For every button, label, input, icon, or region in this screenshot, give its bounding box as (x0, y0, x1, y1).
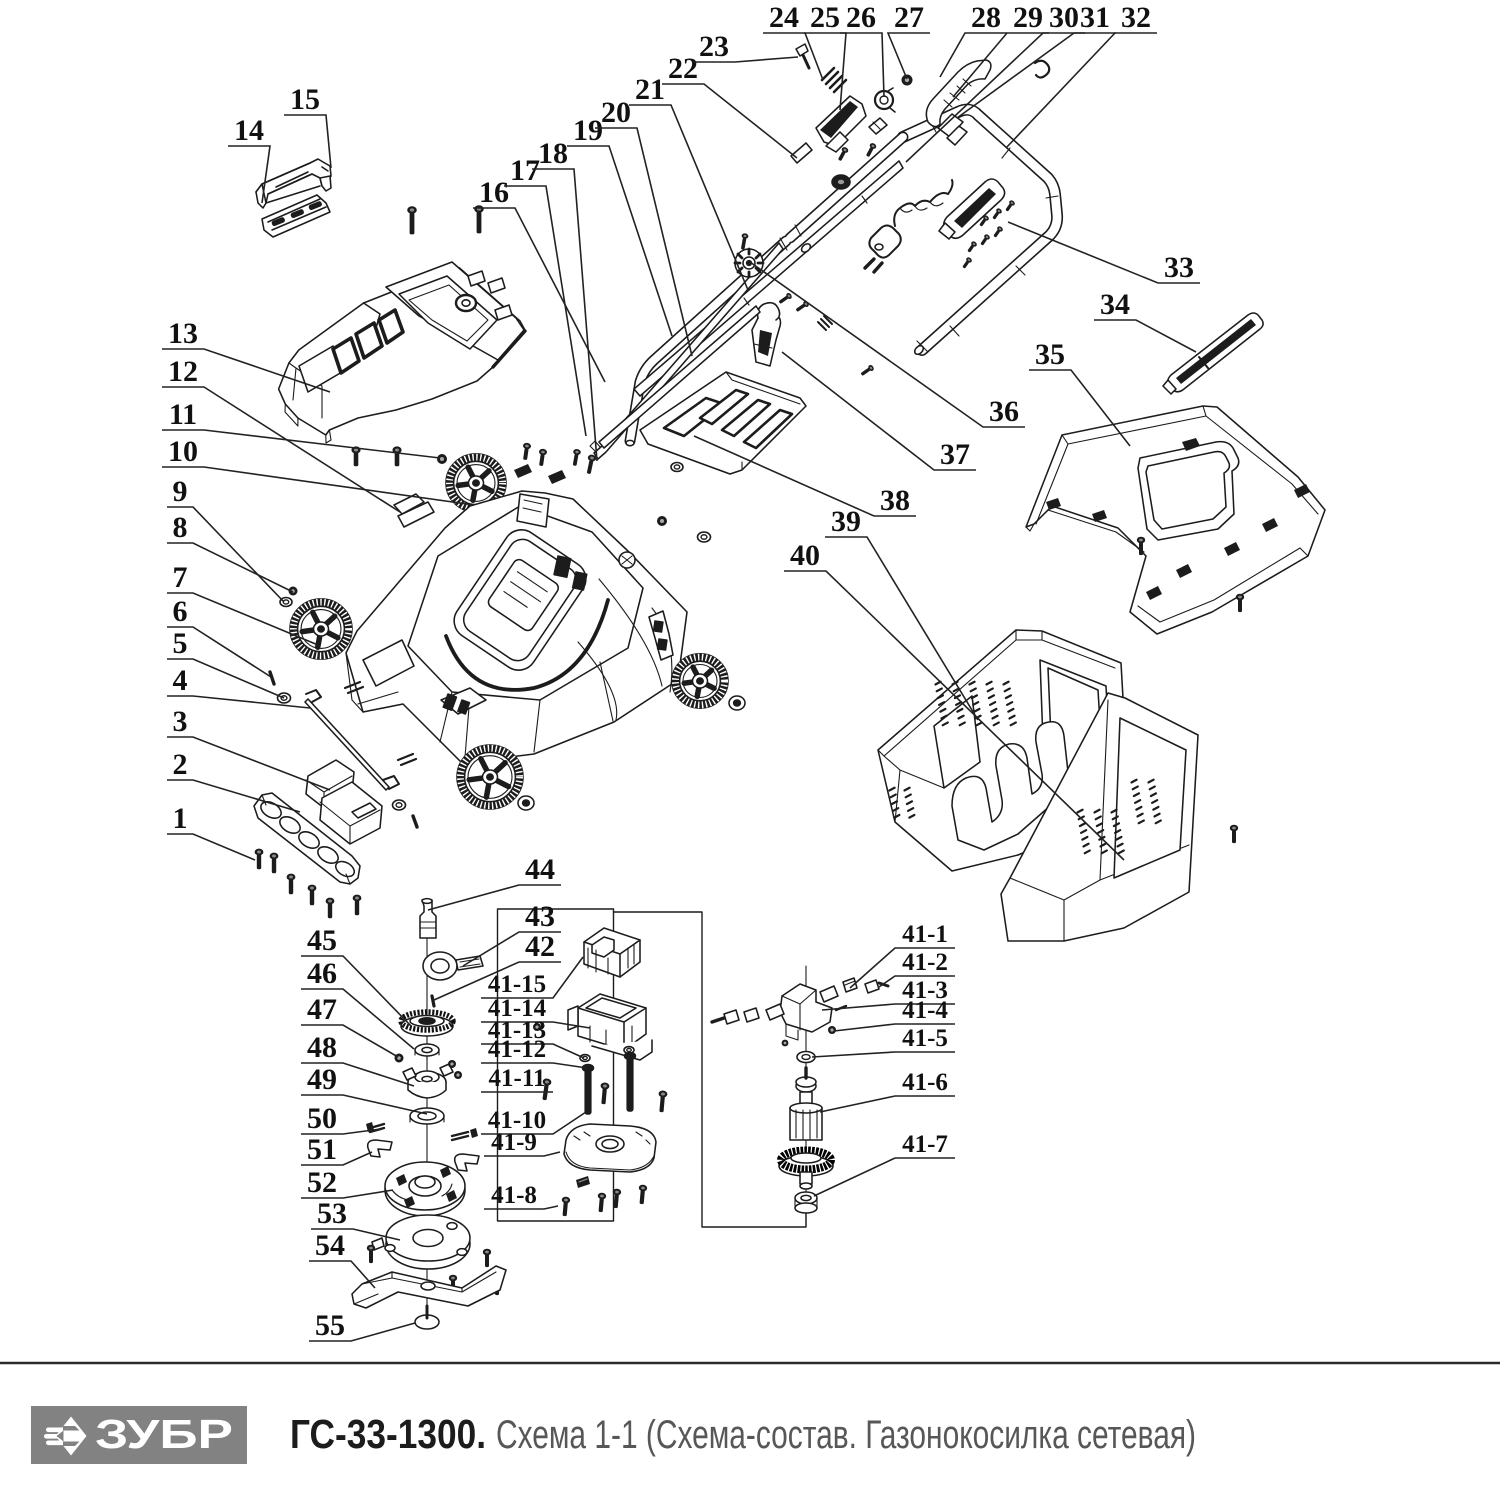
svg-text:41-6: 41-6 (902, 1069, 948, 1096)
svg-text:21: 21 (635, 73, 665, 106)
svg-text:23: 23 (699, 30, 729, 63)
svg-text:2: 2 (173, 748, 188, 781)
svg-text:41-7: 41-7 (902, 1131, 948, 1158)
svg-text:27: 27 (894, 1, 924, 34)
svg-text:46: 46 (307, 957, 337, 990)
svg-text:41-4: 41-4 (902, 997, 948, 1024)
svg-text:30: 30 (1049, 1, 1079, 34)
svg-text:8: 8 (173, 511, 188, 544)
svg-text:12: 12 (168, 355, 198, 388)
svg-text:49: 49 (307, 1063, 337, 1096)
svg-text:17: 17 (510, 154, 540, 187)
svg-text:11: 11 (169, 398, 197, 431)
svg-text:13: 13 (168, 317, 198, 350)
svg-text:47: 47 (307, 993, 337, 1026)
svg-text:4: 4 (173, 664, 188, 697)
svg-text:42: 42 (525, 930, 555, 963)
svg-text:19: 19 (573, 114, 603, 147)
svg-text:41-12: 41-12 (488, 1036, 546, 1063)
svg-text:51: 51 (307, 1133, 337, 1166)
svg-text:16: 16 (479, 176, 509, 209)
svg-text:41-11: 41-11 (489, 1065, 546, 1092)
svg-text:3: 3 (173, 705, 188, 738)
svg-text:7: 7 (173, 561, 188, 594)
svg-text:55: 55 (315, 1309, 345, 1342)
svg-text:40: 40 (790, 539, 820, 572)
svg-text:10: 10 (168, 435, 198, 468)
svg-text:1: 1 (173, 802, 188, 835)
svg-text:24: 24 (769, 1, 799, 34)
svg-text:41-1: 41-1 (902, 921, 948, 948)
svg-text:20: 20 (601, 96, 631, 129)
svg-text:45: 45 (307, 924, 337, 957)
svg-text:44: 44 (525, 853, 555, 886)
svg-text:5: 5 (173, 627, 188, 660)
svg-text:50: 50 (307, 1102, 337, 1135)
svg-text:38: 38 (880, 484, 910, 517)
svg-text:ГС-33-1300.: ГС-33-1300. (290, 1411, 486, 1457)
svg-text:41-2: 41-2 (902, 949, 948, 976)
svg-text:41-9: 41-9 (491, 1129, 537, 1156)
svg-text:33: 33 (1164, 251, 1194, 284)
svg-text:25: 25 (810, 1, 840, 34)
svg-text:43: 43 (525, 900, 555, 933)
svg-text:26: 26 (846, 1, 876, 34)
svg-text:29: 29 (1013, 1, 1043, 34)
svg-text:22: 22 (668, 52, 698, 85)
svg-text:28: 28 (971, 1, 1001, 34)
svg-text:39: 39 (831, 505, 861, 538)
svg-text:48: 48 (307, 1031, 337, 1064)
svg-text:52: 52 (307, 1166, 337, 1199)
svg-text:41-5: 41-5 (902, 1025, 948, 1052)
svg-text:Схема 1-1 (Схема-состав. Газон: Схема 1-1 (Схема-состав. Газонокосилка с… (496, 1413, 1196, 1457)
svg-text:31: 31 (1080, 1, 1110, 34)
svg-text:9: 9 (173, 475, 188, 508)
svg-text:53: 53 (317, 1197, 347, 1230)
svg-text:41-8: 41-8 (491, 1182, 537, 1209)
svg-text:37: 37 (940, 438, 970, 471)
svg-text:54: 54 (315, 1229, 345, 1262)
svg-text:6: 6 (173, 595, 188, 628)
svg-text:15: 15 (290, 83, 320, 116)
svg-text:36: 36 (989, 395, 1019, 428)
svg-text:32: 32 (1121, 1, 1151, 34)
svg-text:41-15: 41-15 (488, 971, 546, 998)
svg-text:18: 18 (538, 137, 568, 170)
svg-text:ЗУБР: ЗУБР (95, 1411, 233, 1457)
svg-text:34: 34 (1100, 288, 1130, 321)
svg-text:14: 14 (234, 114, 264, 147)
svg-text:35: 35 (1035, 338, 1065, 371)
